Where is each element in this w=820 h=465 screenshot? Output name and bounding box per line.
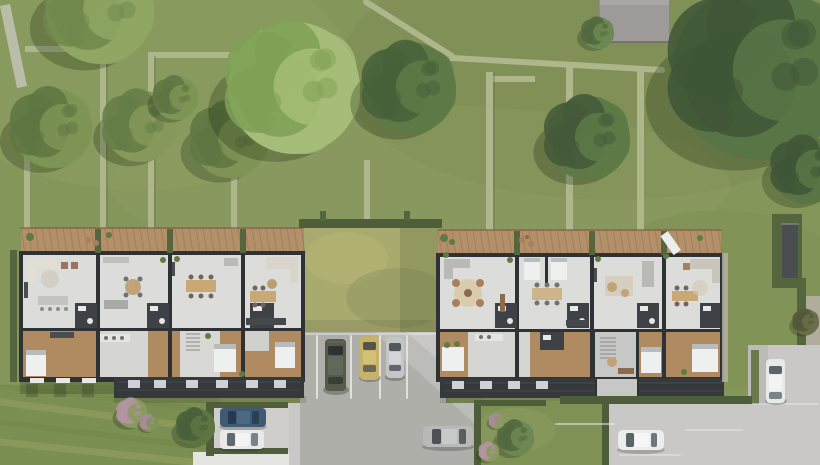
building-left — [19, 228, 305, 398]
car-silver-parking — [385, 337, 405, 381]
car-white-road — [617, 430, 665, 454]
car-white-bay — [220, 430, 264, 452]
site-plan-rendering — [0, 0, 820, 465]
car-suv-dark-parking — [323, 339, 349, 395]
foreground-hedges — [560, 396, 752, 404]
car-blue-bay — [219, 408, 267, 431]
courtyard-lawn — [299, 211, 450, 332]
car-white-right — [765, 359, 787, 405]
car-beige-parking — [359, 336, 381, 382]
building-right — [436, 230, 728, 398]
car-silver-road — [422, 426, 474, 451]
site-svg — [0, 0, 820, 465]
